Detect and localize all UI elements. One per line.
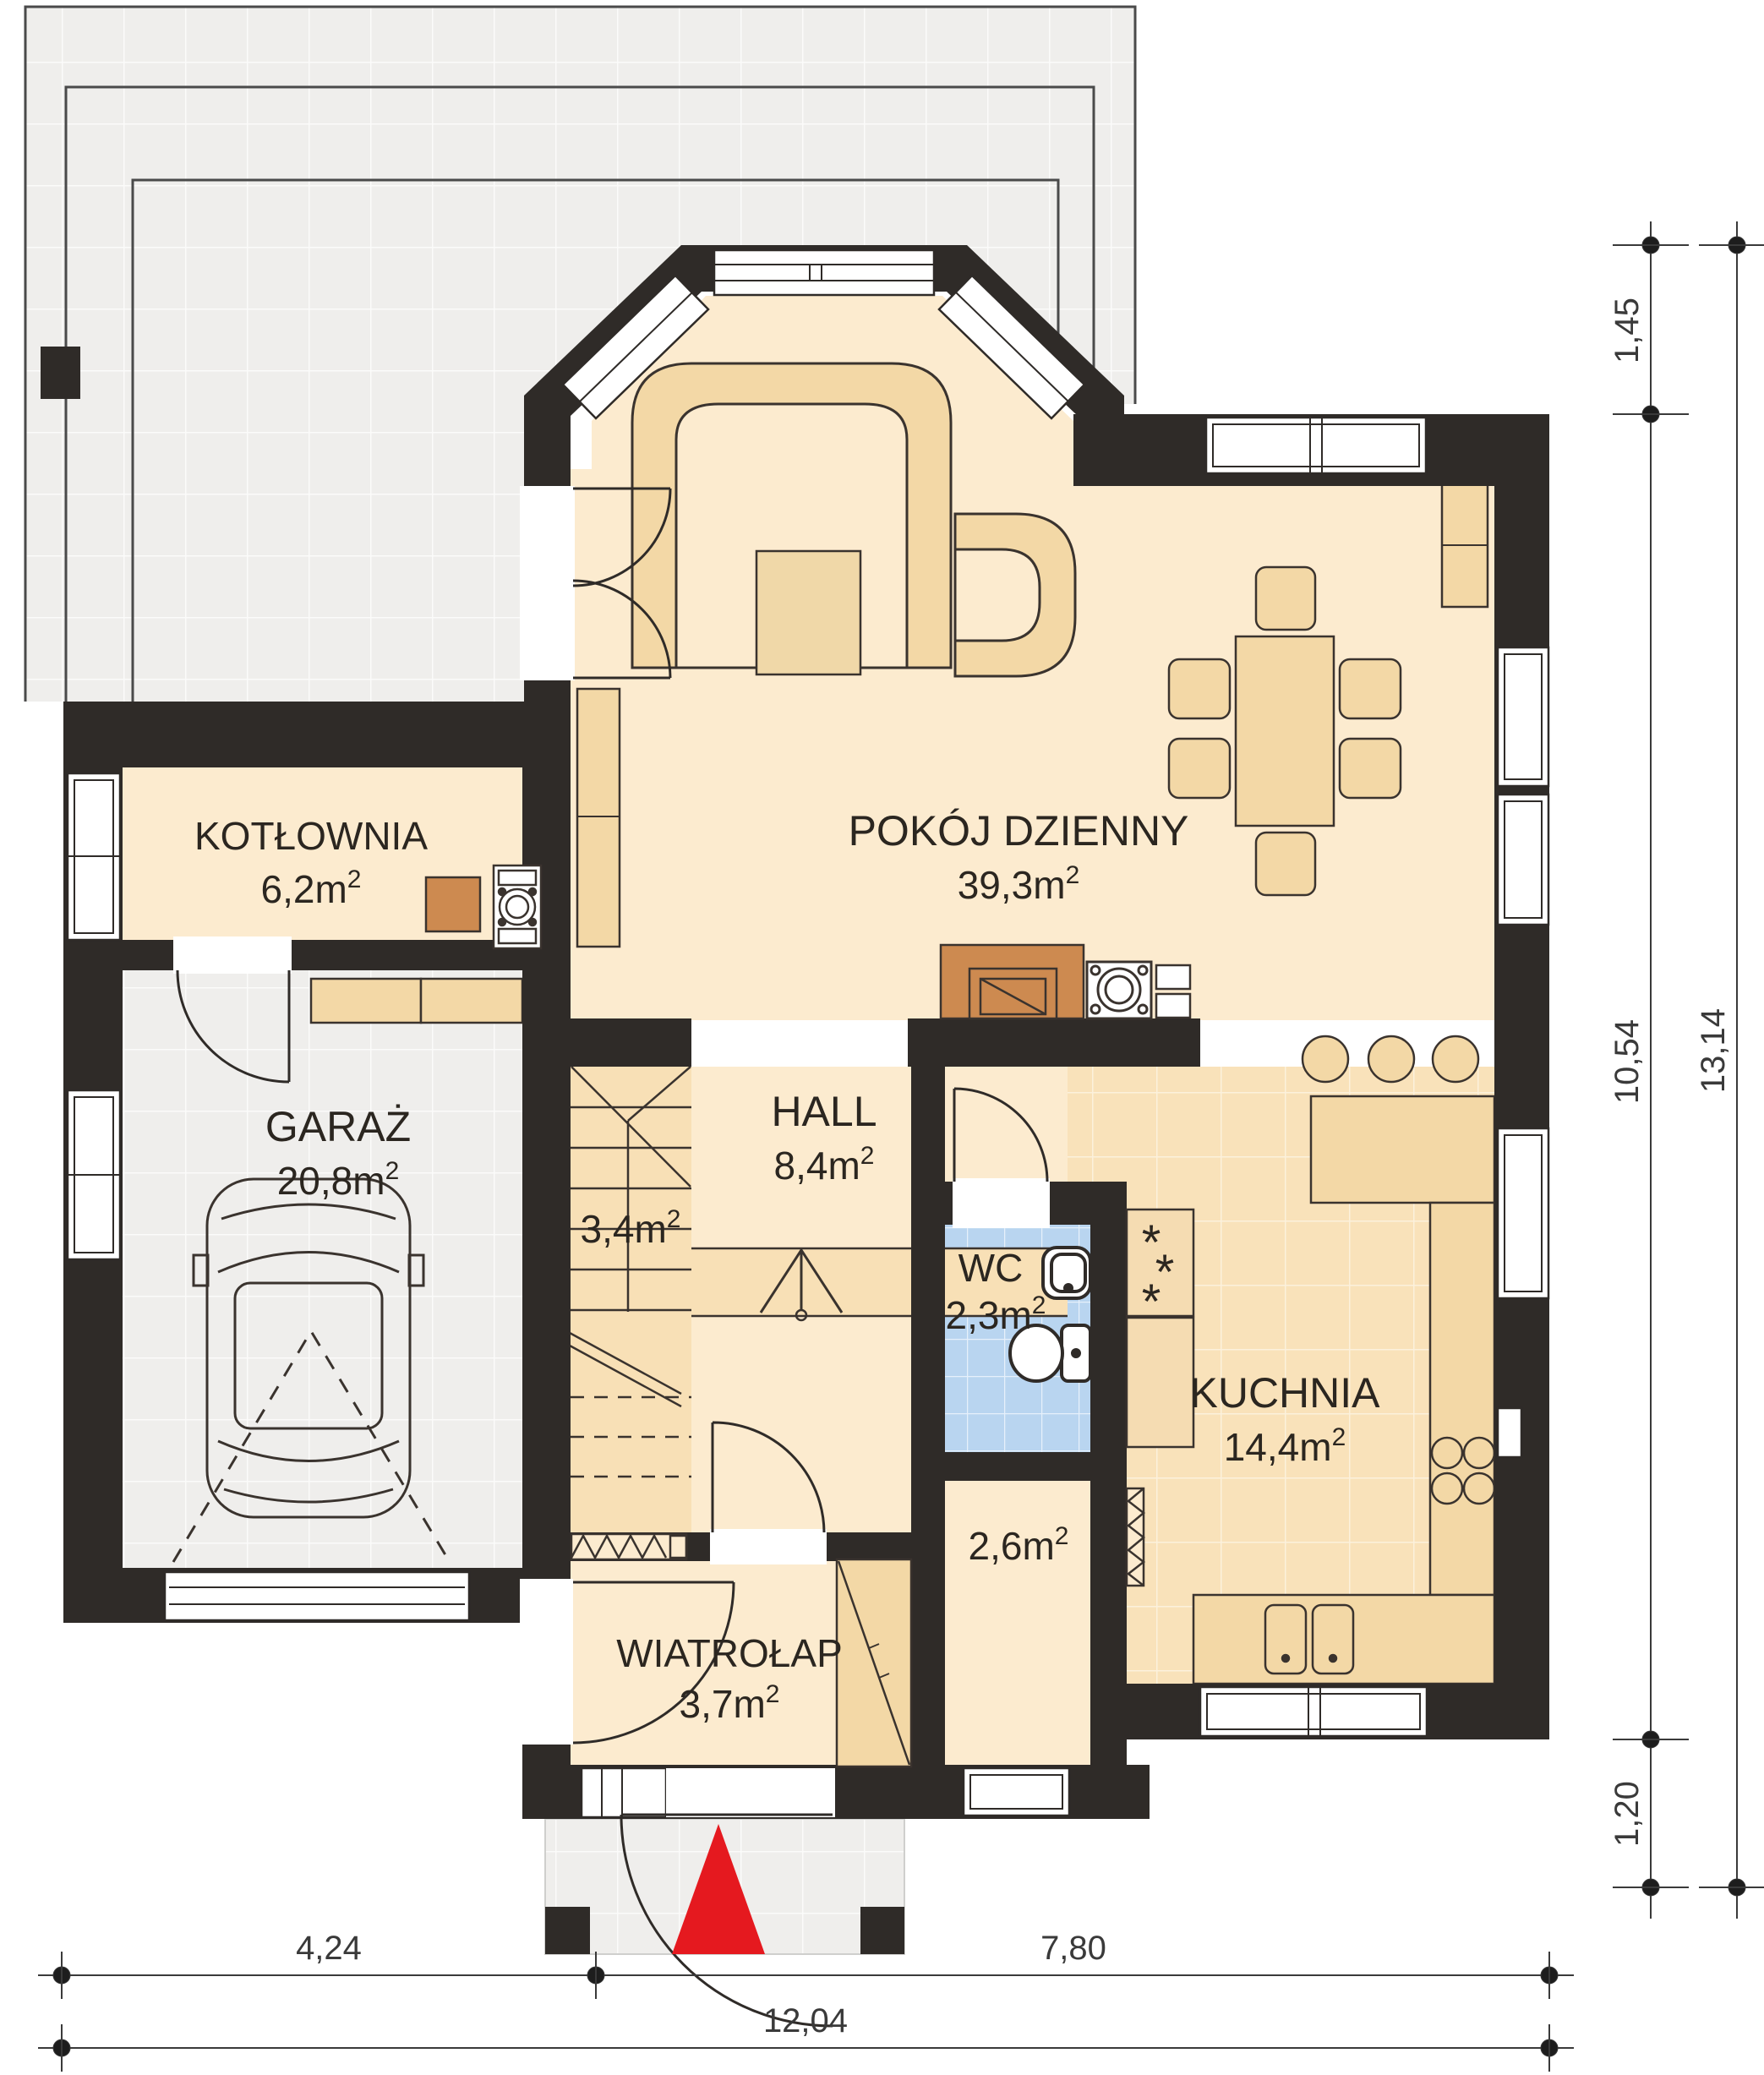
garage-shelf xyxy=(421,979,522,1023)
dining-table xyxy=(1236,636,1334,826)
dim-10-54: 10,54 xyxy=(1608,1019,1646,1104)
floor-plan-page: * * * xyxy=(0,0,1764,2075)
kitchen-peninsula xyxy=(1311,1096,1494,1203)
chair xyxy=(1340,659,1401,718)
pantry-shelf-symbol xyxy=(1127,1488,1144,1586)
dim-13-14: 13,14 xyxy=(1695,1008,1732,1093)
cabinet xyxy=(577,689,620,947)
window-west-kotlownia xyxy=(68,773,120,940)
vent-east xyxy=(1498,1408,1521,1457)
dim-12-04: 12,04 xyxy=(763,2002,848,2040)
label-garage: GARAŻ xyxy=(265,1103,411,1150)
dim-4-24: 4,24 xyxy=(296,1930,362,1967)
coffee-table xyxy=(756,551,860,674)
label-living-room: POKÓJ DZIENNY xyxy=(849,807,1189,855)
chair xyxy=(1340,739,1401,798)
area-stairs: 3,4m2 xyxy=(581,1205,681,1251)
kotlownia-stove-icon xyxy=(494,865,541,948)
washbasin-icon xyxy=(1043,1248,1090,1298)
window-south-kitchen xyxy=(1200,1687,1427,1736)
area-kitchen: 14,4m2 xyxy=(1224,1423,1346,1469)
wardrobe xyxy=(837,1559,911,1766)
area-vestibule: 3,7m2 xyxy=(680,1680,780,1726)
bay-window-top xyxy=(714,250,934,295)
garage-door xyxy=(165,1572,469,1620)
tall-cabinet xyxy=(1127,1318,1193,1447)
chair xyxy=(1169,739,1230,798)
label-wc: WC xyxy=(958,1246,1024,1290)
floor-plan-drawing: * * * xyxy=(0,0,1764,2075)
svg-text:*: * xyxy=(1142,1275,1161,1330)
boiler xyxy=(426,877,480,931)
bar-stool xyxy=(1303,1036,1348,1082)
kitchen-counter-east xyxy=(1430,1203,1494,1595)
label-kitchen: KUCHNIA xyxy=(1189,1369,1380,1417)
label-boiler-room: KOTŁOWNIA xyxy=(194,814,428,858)
area-pantry: 2,6m2 xyxy=(969,1522,1069,1568)
bar-stool xyxy=(1433,1036,1478,1082)
label-hall: HALL xyxy=(771,1088,877,1135)
label-vestibule: WIATROŁAP xyxy=(616,1631,843,1675)
chair xyxy=(1169,659,1230,718)
terrace-pillar xyxy=(41,347,80,399)
area-hall: 8,4m2 xyxy=(774,1142,875,1188)
window-north xyxy=(1206,418,1426,473)
area-living-room: 39,3m2 xyxy=(958,861,1080,907)
dim-1-45: 1,45 xyxy=(1608,298,1646,363)
area-boiler-room: 6,2m2 xyxy=(261,865,362,911)
bar-stool xyxy=(1368,1036,1414,1082)
chair xyxy=(1256,833,1315,895)
dim-7-80: 7,80 xyxy=(1040,1930,1106,1967)
window-south-pantry xyxy=(964,1768,1069,1816)
window-east-living-2 xyxy=(1498,795,1548,925)
window-east-kitchen xyxy=(1498,1128,1548,1298)
front-door-sidelight xyxy=(582,1768,666,1817)
chimney-cleanout-icon xyxy=(1087,962,1151,1018)
area-wc: 2,3m2 xyxy=(946,1291,1046,1337)
fridge-units: * * * xyxy=(1127,1210,1193,1447)
dim-1-20: 1,20 xyxy=(1608,1781,1646,1847)
area-garage: 20,8m2 xyxy=(277,1157,400,1203)
garage-shelf xyxy=(311,979,421,1023)
chair xyxy=(1256,567,1315,630)
coat-closet-symbol xyxy=(571,1534,686,1559)
window-east-living-1 xyxy=(1498,647,1548,786)
window-west-garage xyxy=(68,1090,120,1259)
